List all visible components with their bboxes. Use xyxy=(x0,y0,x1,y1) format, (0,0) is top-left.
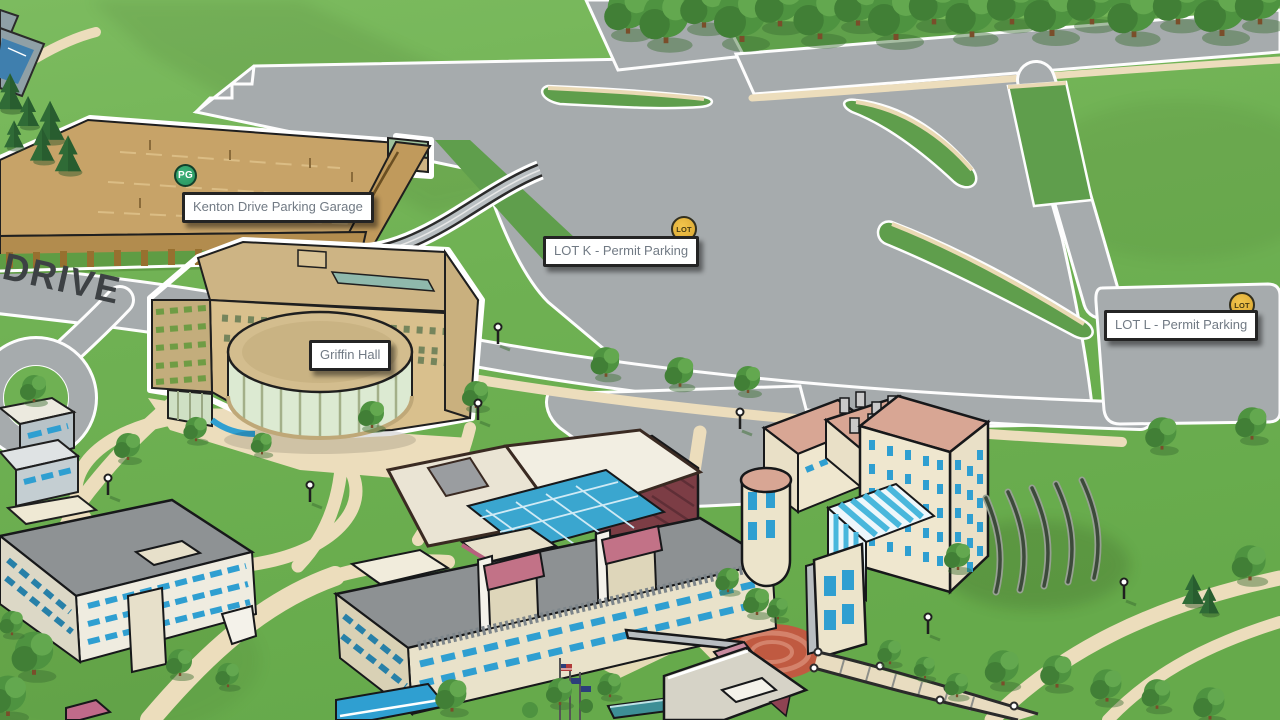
marker-lot-k[interactable]: LOT K - Permit Parking xyxy=(543,236,699,267)
campus-map[interactable]: DRIVE PG Kenton Drive Parking Garage Gri… xyxy=(0,0,1280,720)
campus-map-illustration xyxy=(0,0,1280,720)
marker-lot-l[interactable]: LOT L - Permit Parking xyxy=(1104,310,1258,341)
parking-garage-badge-icon[interactable]: PG xyxy=(174,164,197,187)
marker-griffin-hall[interactable]: Griffin Hall xyxy=(309,340,391,371)
marker-kenton-drive-parking-garage[interactable]: Kenton Drive Parking Garage xyxy=(182,192,374,223)
